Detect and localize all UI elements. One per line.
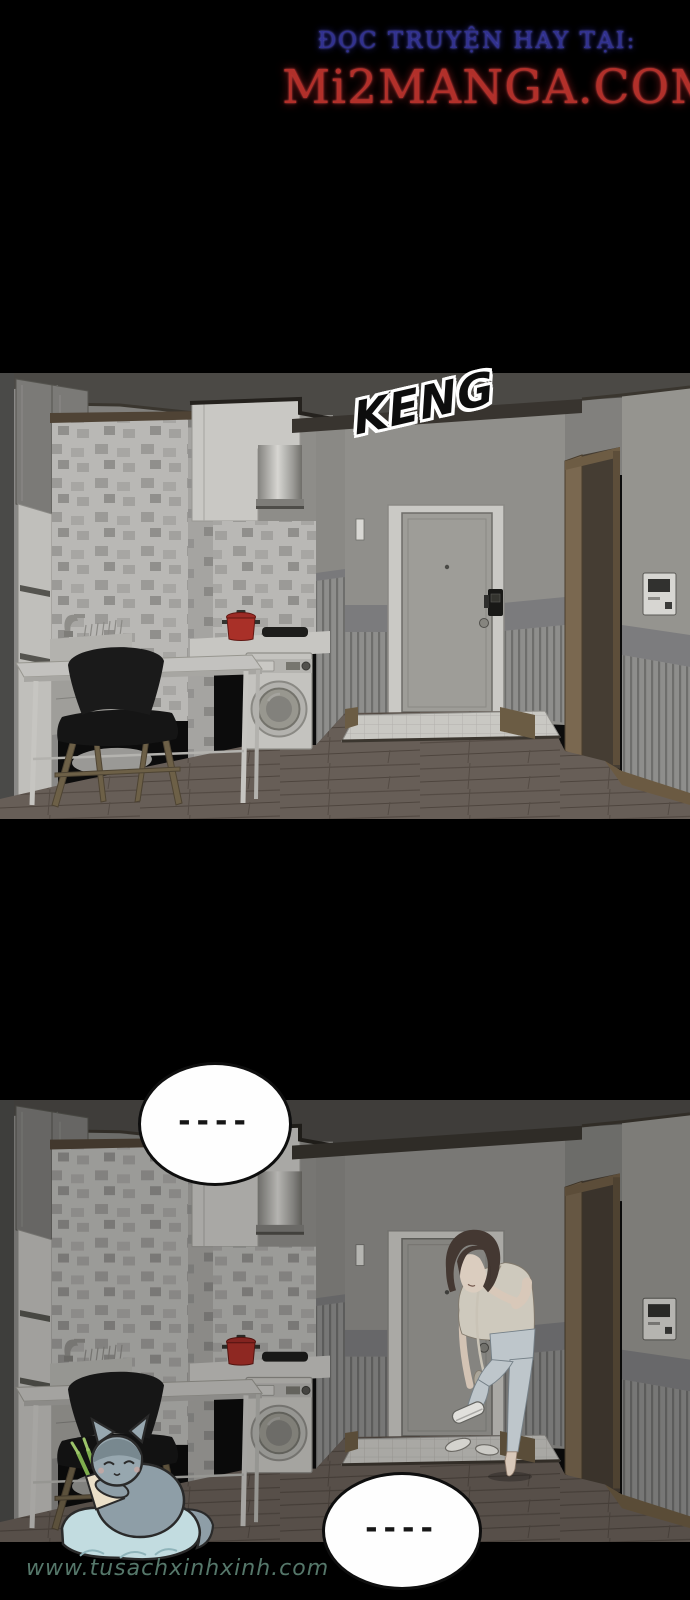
panel-2-scene (0, 1100, 690, 1542)
bubble-top-text: ---- (178, 1104, 252, 1139)
panel-1-scene (0, 373, 690, 819)
header-tagline: ĐỌC TRUYỆN HAY TẠI: (282, 28, 672, 54)
speech-bubble-bottom: ---- (322, 1472, 482, 1590)
speech-bubble-top: ---- (138, 1062, 292, 1186)
site-header: ĐỌC TRUYỆN HAY TẠI: Mi2MANGA.COM (282, 28, 672, 115)
header-site-title: Mi2MANGA.COM (282, 60, 672, 115)
bubble-bottom-text: ---- (365, 1511, 439, 1546)
panel-1: KENG (0, 373, 690, 819)
panel-2 (0, 1100, 690, 1542)
watermark-url: www.tusachxinhxinh.com (26, 1556, 329, 1581)
comic-page: ĐỌC TRUYỆN HAY TẠI: Mi2MANGA.COM KENG (0, 0, 690, 1600)
